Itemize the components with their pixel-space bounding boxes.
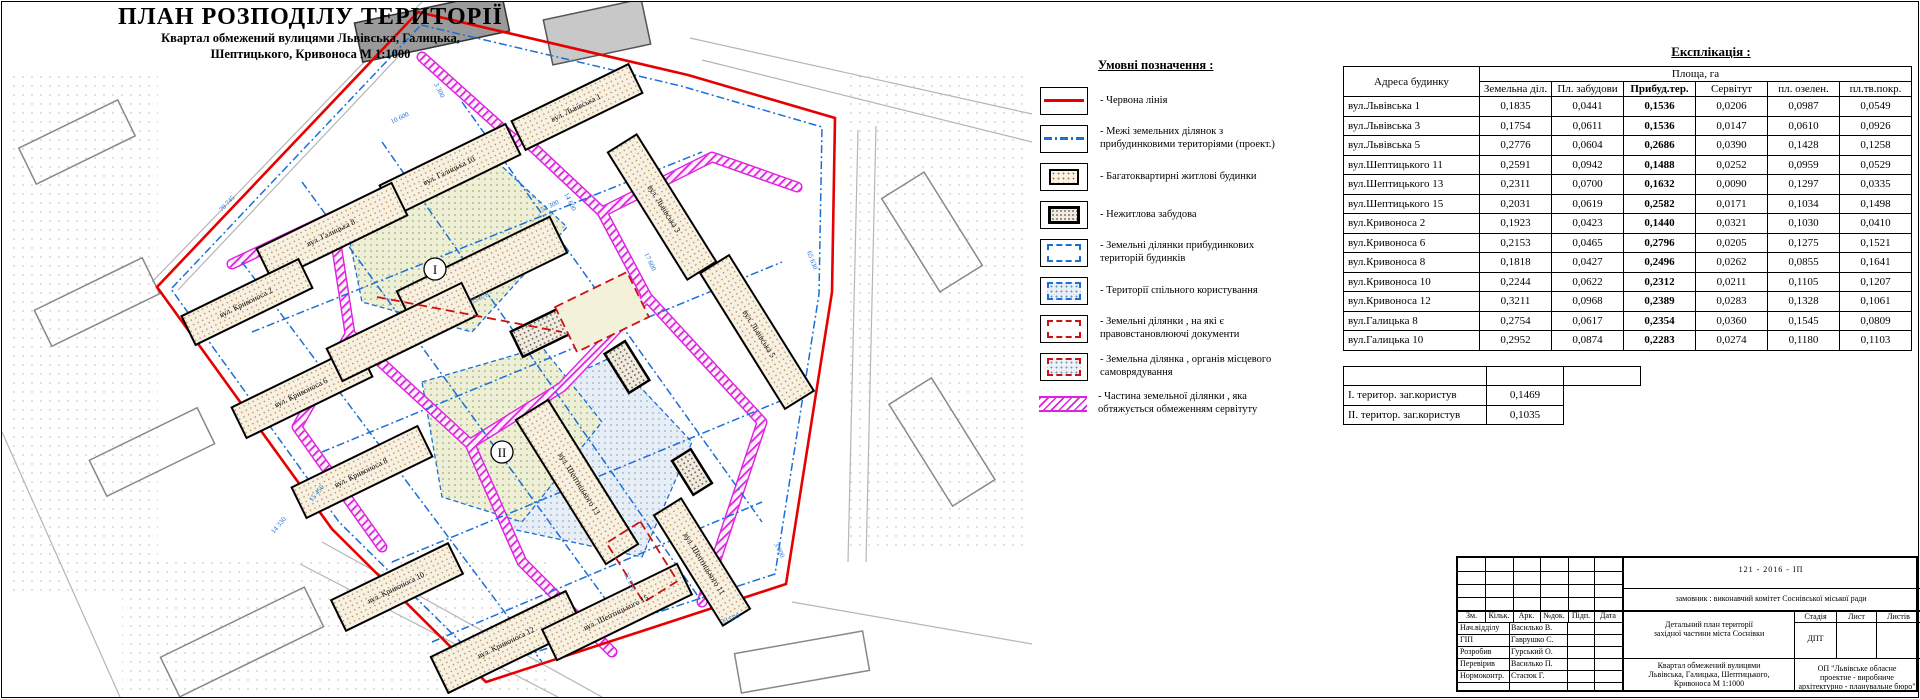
drawing-title-block: ПЛАН РОЗПОДІЛУ ТЕРИТОРІЇ Квартал обмежен… bbox=[18, 4, 603, 62]
table-row: вул.Галицька 8 0,2754 0,0617 0,2354 0,03… bbox=[1344, 311, 1912, 331]
role-label: Нач.відділу bbox=[1460, 623, 1509, 632]
plan-sheet: І ІІ вул. Галицька 10 вул. Галицька 8 ву… bbox=[0, 0, 1920, 699]
col-header: Сервітут bbox=[1696, 82, 1768, 97]
role-name: Стасюк Г. bbox=[1511, 671, 1566, 680]
table-row: вул.Львівська 5 0,2776 0,0604 0,2686 0,0… bbox=[1344, 136, 1912, 156]
house-parcel-swatch-icon bbox=[1040, 239, 1088, 267]
svg-text:65 630: 65 630 bbox=[805, 250, 819, 271]
project-title: Детальний план території західної частин… bbox=[1626, 620, 1792, 638]
page-title: ПЛАН РОЗПОДІЛУ ТЕРИТОРІЇ bbox=[18, 4, 603, 31]
stage-col-header: Стадія bbox=[1795, 612, 1836, 621]
page-subtitle-line2: Шептицького, Кривоноса М 1:1000 bbox=[18, 47, 603, 63]
table-row: вул.Кривоноса 2 0,1923 0,0423 0,1440 0,0… bbox=[1344, 214, 1912, 234]
legend-item-non-residential: - Нежитлова забудова bbox=[1040, 201, 1330, 229]
sheet-col-header: Лист bbox=[1837, 612, 1876, 621]
role-name: Гурський О. bbox=[1511, 647, 1566, 656]
col-header: Земельна діл. bbox=[1480, 82, 1552, 97]
table-row: вул.Шептицького 11 0,2591 0,0942 0,1488 … bbox=[1344, 155, 1912, 175]
red-line-swatch-icon bbox=[1040, 87, 1088, 115]
col-header: Пл. забудови bbox=[1552, 82, 1624, 97]
svg-text:14 330: 14 330 bbox=[269, 515, 288, 535]
table-row: вул.Кривоноса 6 0,2153 0,0465 0,2796 0,0… bbox=[1344, 233, 1912, 253]
spacer-row bbox=[1344, 366, 1641, 386]
rev-col-header: №док. bbox=[1540, 611, 1568, 620]
address-header: Адреса будинку bbox=[1344, 67, 1480, 97]
area-group-header: Площа, га bbox=[1480, 67, 1912, 82]
legend-title: Умовні позначення : bbox=[1098, 58, 1330, 73]
role-label: Нормоконтр. bbox=[1460, 671, 1509, 680]
col-header: Прибуд.тер. bbox=[1624, 82, 1696, 97]
table-header-row: Адреса будинку Площа, га bbox=[1344, 67, 1912, 82]
stage-value: ДПТ bbox=[1795, 634, 1836, 643]
svg-text:3 000: 3 000 bbox=[772, 541, 786, 559]
explication-section: Експлікація : Адреса будинку Площа, га З… bbox=[1343, 44, 1919, 425]
legend: Умовні позначення : - Червона лінія - Ме… bbox=[1040, 58, 1330, 427]
legend-item-servitude: - Частина земельної ділянки , яка обтяжу… bbox=[1040, 391, 1330, 417]
role-label: Перевірив bbox=[1460, 659, 1509, 668]
svg-text:10 600: 10 600 bbox=[389, 110, 410, 126]
role-label: ГІП bbox=[1460, 635, 1509, 644]
legend-item-apartment-buildings: - Багатоквартирні житлові будинки bbox=[1040, 163, 1330, 191]
non-residential-building bbox=[672, 449, 712, 495]
rev-col-header: Арк. bbox=[1513, 611, 1540, 620]
table-row: вул.Галицька 10 0,2952 0,0874 0,2283 0,0… bbox=[1344, 331, 1912, 351]
legend-item-common-territories: - Території спільного користування bbox=[1040, 277, 1330, 305]
totals-table: І. територ. заг.користув 0,1469 ІІ. тери… bbox=[1343, 366, 1641, 426]
legend-item-parcel-boundaries: - Межі земельних ділянок з прибудинковим… bbox=[1040, 125, 1330, 153]
col-header: пл. озелен. bbox=[1768, 82, 1840, 97]
page-subtitle-line1: Квартал обмежений вулицями Львівська, Га… bbox=[18, 31, 603, 47]
table-row: вул.Львівська 1 0,1835 0,0441 0,1536 0,0… bbox=[1344, 97, 1912, 117]
project-code: 121 - 2016 - ІП bbox=[1624, 565, 1918, 574]
table-row: вул.Кривоноса 10 0,2244 0,0622 0,2312 0,… bbox=[1344, 272, 1912, 292]
legend-item-municipal-parcel: - Земельна ділянка , органів місцевого с… bbox=[1040, 353, 1330, 381]
non-residential-swatch-icon bbox=[1040, 201, 1088, 229]
role-name: Гаврушко С. bbox=[1511, 635, 1566, 644]
role-name: Василько П. bbox=[1511, 659, 1566, 668]
svg-text:І: І bbox=[433, 262, 437, 277]
titled-parcel-swatch-icon bbox=[1040, 315, 1088, 343]
rev-col-header: Зм. bbox=[1458, 611, 1485, 620]
organization-name: ОП "Львівське обласне проектне - виробни… bbox=[1796, 664, 1918, 692]
title-stamp: Зм. Кільк. Арк. №док. Підп. Дата Нач.від… bbox=[1456, 556, 1918, 692]
rev-col-header: Дата bbox=[1594, 611, 1622, 620]
servitude-swatch-icon bbox=[1040, 391, 1086, 417]
rev-col-header: Кільк. bbox=[1485, 611, 1513, 620]
explication-table: Адреса будинку Площа, га Земельна діл. П… bbox=[1343, 66, 1912, 351]
total-row: І. територ. заг.користув 0,1469 bbox=[1344, 386, 1641, 406]
table-row: вул.Львівська 3 0,1754 0,0611 0,1536 0,0… bbox=[1344, 116, 1912, 136]
total-row: ІІ. територ. заг.користув 0,1035 bbox=[1344, 405, 1641, 425]
table-row: вул.Шептицького 13 0,2311 0,0700 0,1632 … bbox=[1344, 175, 1912, 195]
svg-text:ІІ: ІІ bbox=[498, 445, 507, 460]
table-row: вул.Кривоноса 8 0,1818 0,0427 0,2496 0,0… bbox=[1344, 253, 1912, 273]
legend-item-red-line: - Червона лінія bbox=[1040, 87, 1330, 115]
role-label: Розробив bbox=[1460, 647, 1509, 656]
table-row: вул.Шептицького 15 0,2031 0,0619 0,2582 … bbox=[1344, 194, 1912, 214]
svg-text:17 600: 17 600 bbox=[642, 251, 658, 272]
explication-title: Експлікація : bbox=[1543, 44, 1879, 60]
legend-item-house-parcels: - Земельні ділянки прибудинкових територ… bbox=[1040, 239, 1330, 267]
surrounding-streets bbox=[2, 2, 1032, 697]
municipal-parcel-swatch-icon bbox=[1040, 353, 1088, 381]
table-row: вул.Кривоноса 12 0,3211 0,0968 0,2389 0,… bbox=[1344, 292, 1912, 312]
client-line: замовник : виконавчий комітет Соснівсько… bbox=[1624, 594, 1918, 603]
rev-col-header: Підп. bbox=[1568, 611, 1594, 620]
object-title: Квартал обмежений вулицями Львівська, Га… bbox=[1626, 661, 1792, 689]
role-name: Василько В. bbox=[1511, 623, 1566, 632]
legend-item-titled-parcels: - Земельні ділянки , на які є правовстан… bbox=[1040, 315, 1330, 343]
common-territory-swatch-icon bbox=[1040, 277, 1088, 305]
zone-marker-1: І bbox=[424, 258, 446, 280]
sheets-col-header: Листів bbox=[1877, 612, 1920, 621]
site-plan-map: І ІІ вул. Галицька 10 вул. Галицька 8 ву… bbox=[2, 2, 1036, 697]
parcel-boundary-swatch-icon bbox=[1040, 125, 1088, 153]
apartment-building-swatch-icon bbox=[1040, 163, 1088, 191]
zone-marker-2: ІІ bbox=[491, 441, 513, 463]
col-header: пл.тв.покр. bbox=[1840, 82, 1912, 97]
